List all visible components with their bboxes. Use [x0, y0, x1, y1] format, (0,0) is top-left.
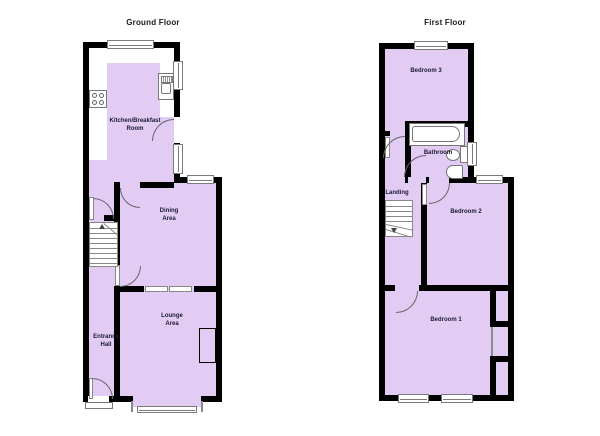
bathtub-icon [409, 123, 465, 146]
bathroom-label: Bathroom [408, 150, 468, 158]
bedroom3-label: Bedroom 3 [386, 68, 466, 76]
staircase-first [385, 200, 413, 237]
kitchen-side-window2-icon [173, 144, 183, 174]
bedroom2-label: Bedroom 2 [426, 209, 506, 217]
double-door-panel-1 [145, 286, 168, 292]
kitchen-side-window-icon [173, 61, 183, 90]
bedroom1-label: Bedroom 1 [406, 317, 486, 325]
kitchen-top-window-icon [107, 40, 154, 49]
bedroom3-window-icon [414, 41, 448, 50]
hob-icon [89, 90, 107, 108]
bay-window-icon [137, 406, 197, 413]
ground-floor-title: Ground Floor [103, 18, 203, 27]
kitchen-label: Kitchen/BreakfastRoom [95, 118, 175, 134]
bathroom-door-gap [408, 177, 426, 183]
bedroom1-window2-icon [441, 394, 473, 403]
stair-direction-arrow-icon [99, 224, 105, 229]
sink-unit-icon [158, 73, 174, 100]
front-step [85, 402, 113, 409]
lounge-label: LoungeArea [142, 313, 202, 329]
entrance-hall-label: EntranceHall [66, 334, 146, 350]
landing-label: Landing [357, 190, 437, 198]
chimney-breast [199, 328, 216, 363]
dining-label: DiningArea [139, 208, 199, 224]
wardrobe-wall-lower [490, 362, 496, 395]
bedroom1-window1-icon [398, 394, 429, 403]
dining-window-icon [187, 175, 214, 184]
wardrobe-wall-upper [490, 291, 496, 323]
bathroom-window-icon [467, 142, 477, 166]
wash-basin-icon [446, 165, 463, 179]
double-door-panel-2 [169, 286, 192, 292]
first-floor-title: First Floor [395, 18, 495, 27]
wall-stub-bed3 [385, 131, 390, 136]
stair-direction-arrow-icon [391, 228, 397, 233]
wardrobe-door-line [491, 327, 493, 358]
bedroom2-window-icon [476, 175, 503, 184]
bay-side-left [131, 401, 133, 412]
bay-side-right [201, 401, 203, 412]
